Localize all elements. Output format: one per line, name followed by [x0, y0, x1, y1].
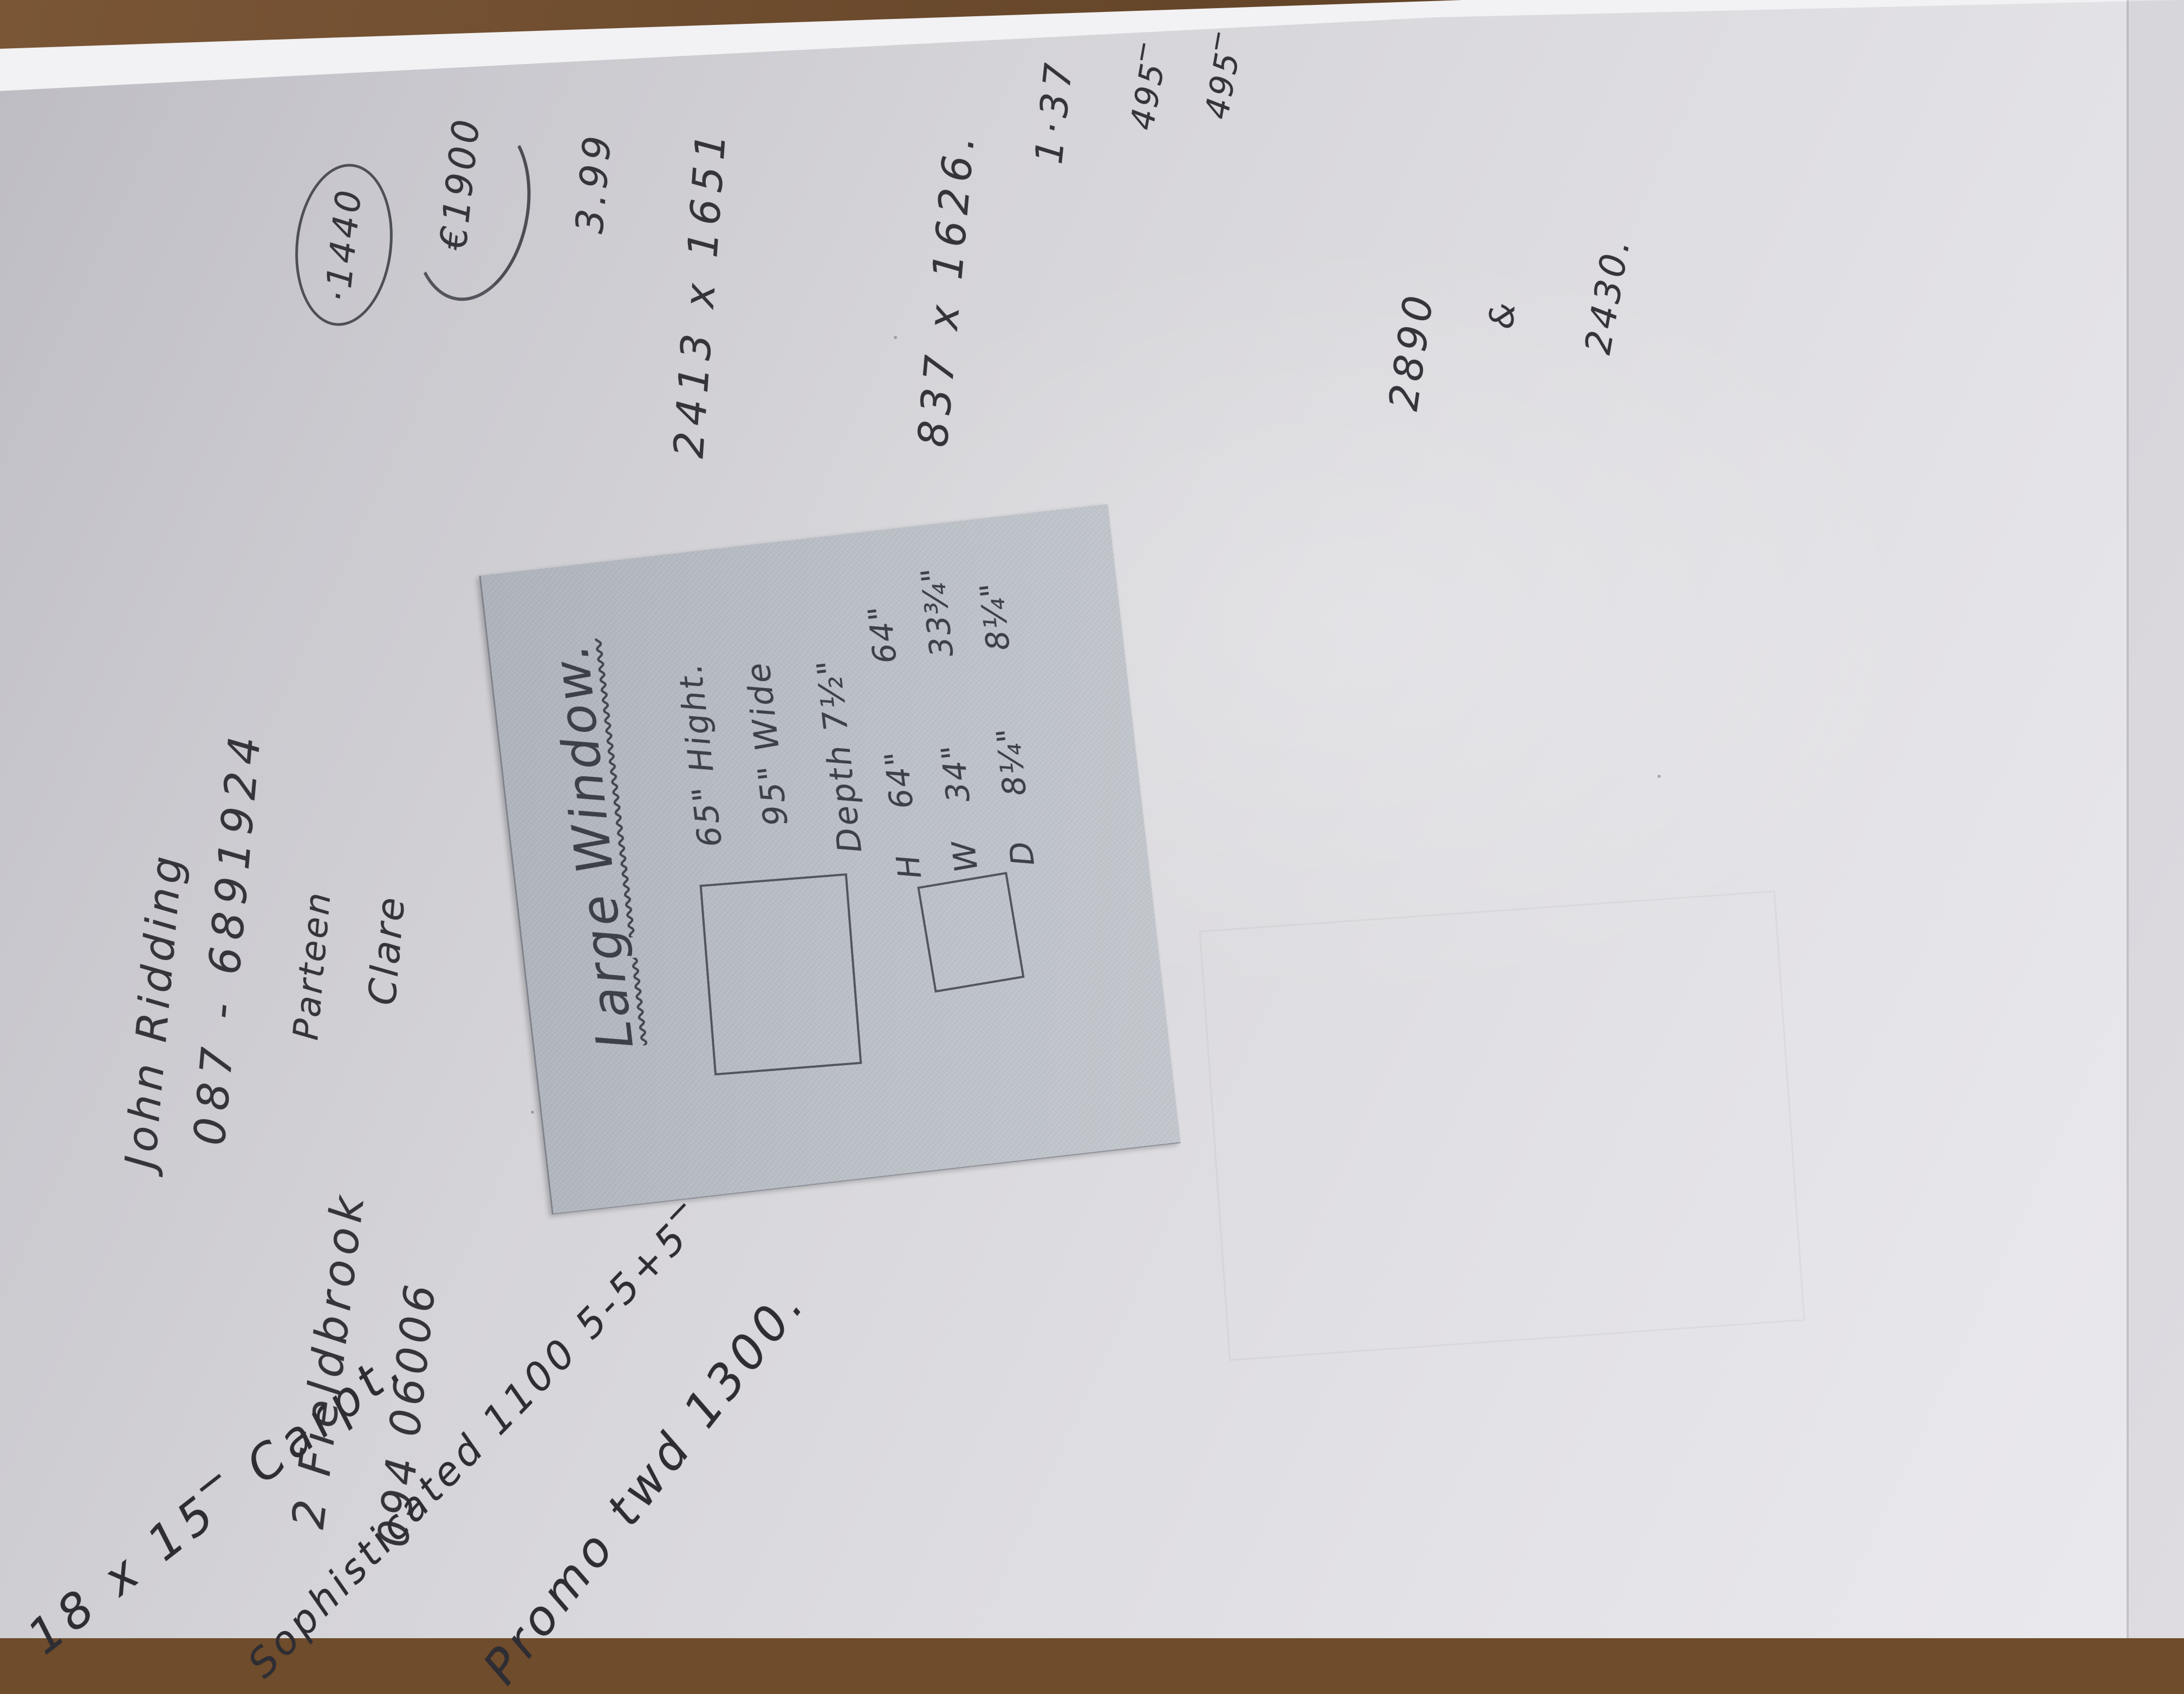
- note-table-lbl: W: [945, 838, 985, 874]
- note-table-lbl: H: [889, 851, 928, 880]
- paper-speck: [894, 336, 897, 339]
- note-table-v2: 8¼": [972, 579, 1017, 652]
- note-table-lbl: D: [1002, 838, 1041, 867]
- paper-speck: [531, 1111, 534, 1114]
- small-window-sketch: [917, 872, 1024, 992]
- note-content: Large Window. 65" Hight. 95" Wide Depth …: [481, 504, 1181, 1213]
- note-table-v1: 8¼": [989, 724, 1033, 798]
- quote-low-value: ·1440: [318, 185, 370, 304]
- note-table-v1: 64": [877, 748, 920, 810]
- note-measurement-table: H64"64"W34"33¾"D8¼"8¼": [854, 526, 1075, 881]
- photocopied-window-note: Large Window. 65" Hight. 95" Wide Depth …: [479, 504, 1181, 1215]
- large-window-sketch: [699, 873, 862, 1075]
- photo-of-handwritten-note: ·1440 John Ridding087 - 68919242 Fieldbr…: [0, 0, 2184, 1638]
- paper-right-edge: [2127, 0, 2184, 1638]
- note-spec-depth: Depth 7½": [809, 655, 869, 854]
- note-title: Large Window.: [541, 638, 645, 1052]
- note-table-v1: 34": [933, 741, 977, 804]
- note-spec-height: 65" Hight.: [671, 659, 729, 848]
- note-spec-width: 95" Wide: [739, 659, 795, 828]
- note-table-v2: 64": [860, 602, 903, 665]
- faint-rectangle-impression: [1199, 891, 1805, 1361]
- note-table-v2: 33¾": [913, 564, 960, 659]
- paper-speck: [1657, 775, 1661, 778]
- joiner-amp: &: [1481, 301, 1523, 331]
- rate-399: 3.99: [567, 130, 620, 235]
